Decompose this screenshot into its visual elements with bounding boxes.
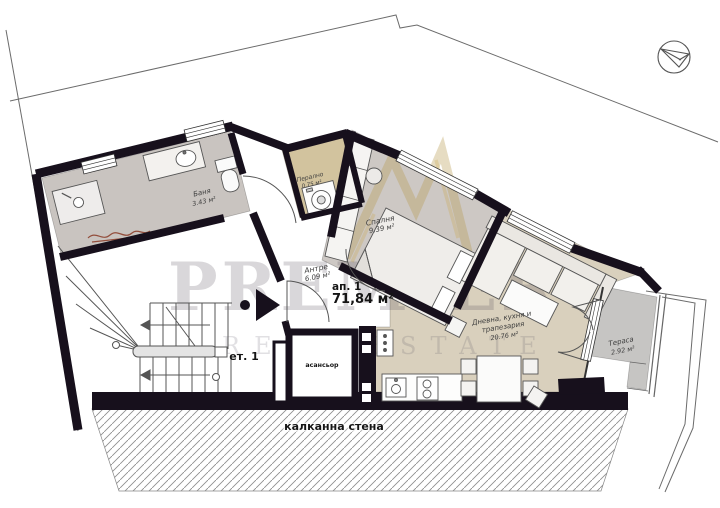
kitchen-counter <box>382 374 462 401</box>
hall-closet <box>377 330 393 356</box>
unit-title: ап. 1 71,84 м² <box>332 281 394 308</box>
bedroom-side-table <box>366 168 382 184</box>
floor-plan-page: PREMIER REAL ESTATE <box>0 0 720 508</box>
service-pillar <box>359 326 376 404</box>
floor-label: ет. 1 <box>229 350 259 364</box>
wall-chunk <box>558 377 605 395</box>
party-wall-label: калканна стена <box>284 420 384 434</box>
compass-north-icon <box>658 41 690 73</box>
unit-area: 71,84 м² <box>332 293 394 308</box>
elevator-label: асансьор <box>305 362 338 370</box>
